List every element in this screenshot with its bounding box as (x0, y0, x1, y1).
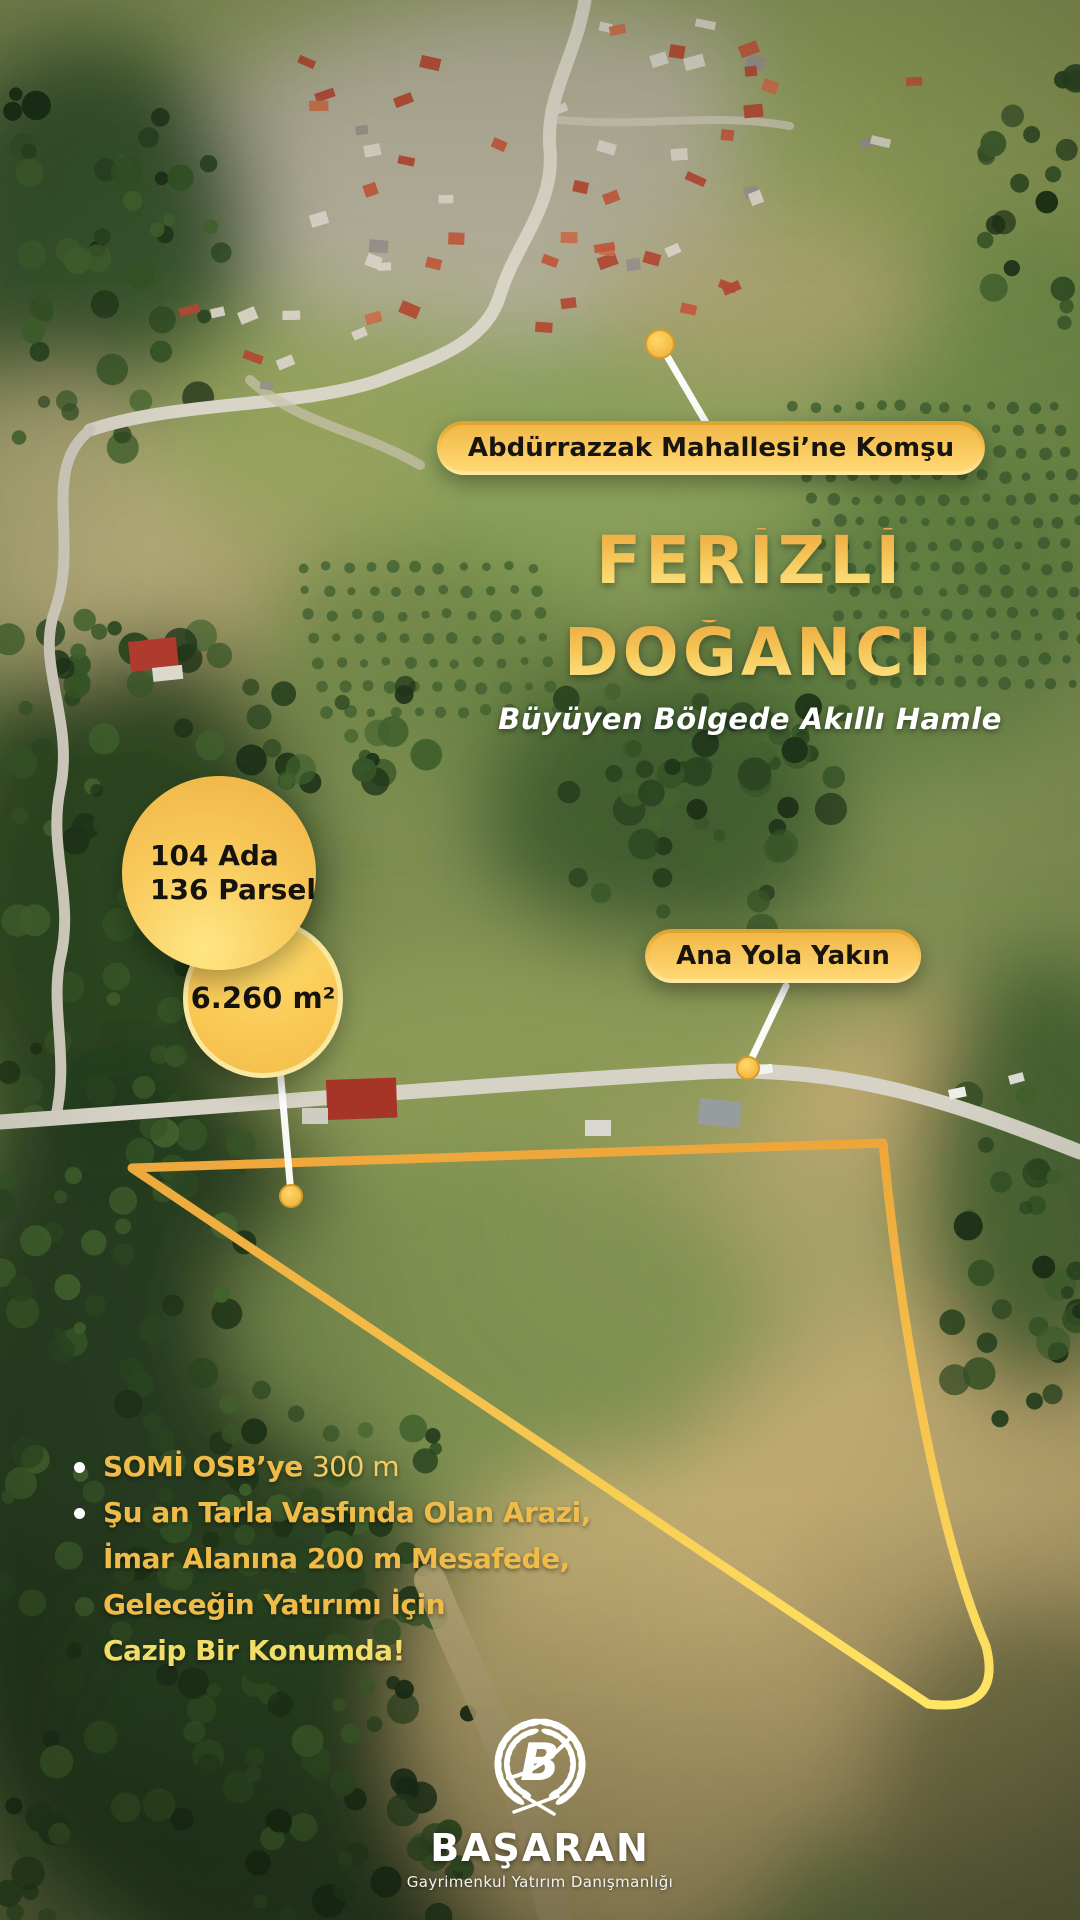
feature-status-line-4: Cazip Bir Konumda! (103, 1628, 405, 1674)
feature-status-line-3-row: Geleceğin Yatırımı İçin (74, 1582, 591, 1628)
feature-list: SOMİ OSB’ye 300 m Şu an Tarla Vasfında O… (74, 1444, 591, 1674)
parcel-lot: 136 Parsel (150, 873, 316, 907)
title-line-2: DOĞANCI (420, 620, 1080, 686)
feature-distance-text: SOMİ OSB’ye 300 m (103, 1444, 399, 1490)
feature-status-line-2: İmar Alanına 200 m Mesafede, (103, 1536, 570, 1582)
road-badge-label: Ana Yola Yakın (649, 933, 917, 979)
pointer-dot-neighborhood (646, 330, 674, 358)
road-badge: Ana Yola Yakın (645, 929, 921, 983)
bullet-dot (74, 1462, 85, 1473)
brand-tagline: Gayrimenkul Yatırım Danışmanlığı (407, 1873, 673, 1891)
pointer-line-road (748, 986, 786, 1066)
parcel-circle: 104 Ada 136 Parsel (122, 776, 316, 970)
neighborhood-badge-label: Abdürrazzak Mahallesi’ne Komşu (441, 425, 981, 471)
neighborhood-badge: Abdürrazzak Mahallesi’ne Komşu (437, 421, 985, 475)
feature-distance-bold: SOMİ OSB’ye (103, 1450, 303, 1483)
title-line-1: FERİZLİ (420, 528, 1080, 594)
pointer-dot-area (280, 1185, 302, 1207)
pointer-dot-road (737, 1057, 759, 1079)
feature-status-line-1: Şu an Tarla Vasfında Olan Arazi, (103, 1490, 591, 1536)
feature-distance-value: 300 m (312, 1450, 399, 1483)
land-listing-poster: Abdürrazzak Mahallesi’ne Komşu FERİZLİ D… (0, 0, 1080, 1920)
feature-item-distance: SOMİ OSB’ye 300 m (74, 1444, 591, 1490)
feature-item-status: Şu an Tarla Vasfında Olan Arazi, (74, 1490, 591, 1536)
feature-status-line-4-row: Cazip Bir Konumda! (74, 1628, 591, 1674)
brand-name: BAŞARAN (430, 1826, 650, 1870)
parcel-block: 104 Ada (150, 839, 316, 873)
brand-block: B BAŞARAN Gayrimenkul Yatırım Danışmanlı… (0, 1712, 1080, 1891)
area-value: 6.260 m² (191, 981, 336, 1015)
feature-status-line-2-row: İmar Alanına 200 m Mesafede, (74, 1536, 591, 1582)
laurel-wreath-logo-icon: B (480, 1712, 600, 1822)
title-block: FERİZLİ DOĞANCI Büyüyen Bölgede Akıllı H… (420, 528, 1080, 736)
bullet-dot (74, 1508, 85, 1519)
title-subtitle: Büyüyen Bölgede Akıllı Hamle (420, 702, 1080, 736)
feature-status-line-3: Geleceğin Yatırımı İçin (103, 1582, 445, 1628)
